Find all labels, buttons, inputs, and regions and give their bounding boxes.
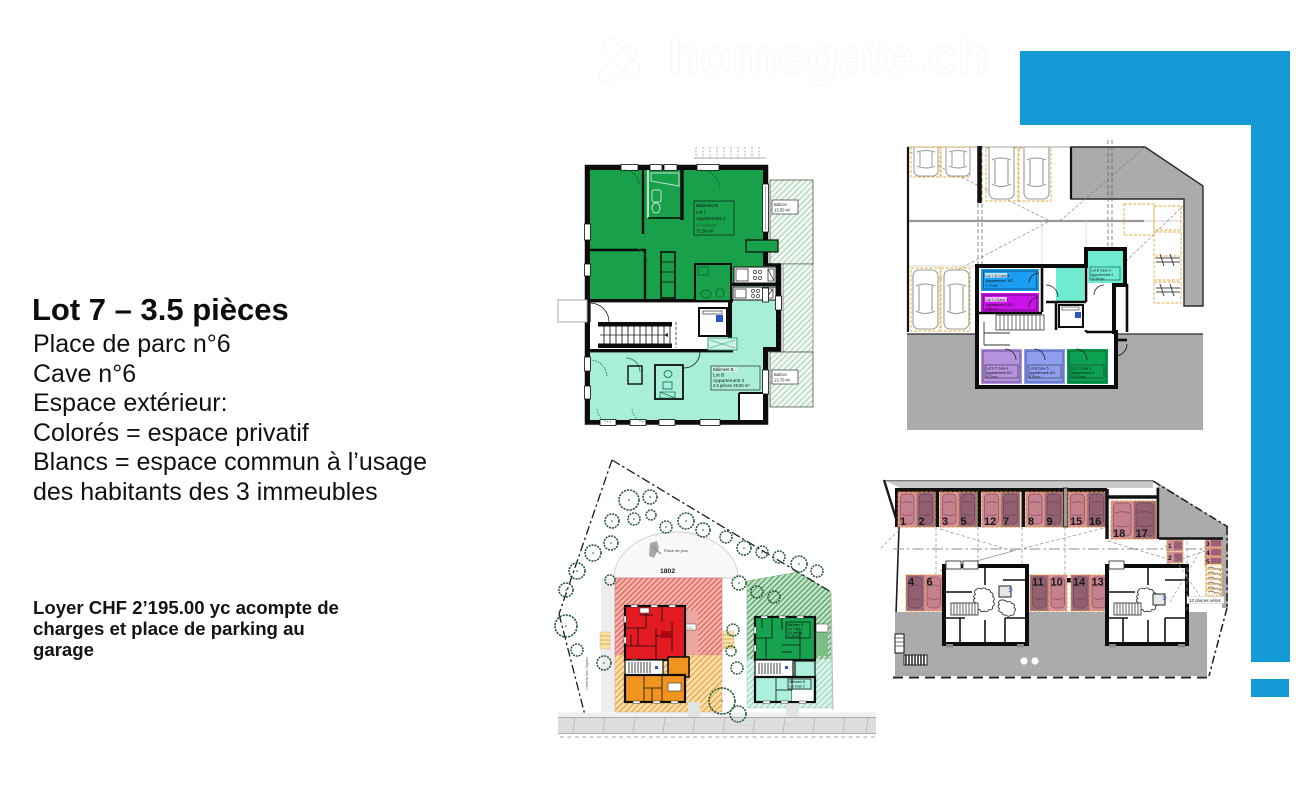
svg-text:15: 15 [1070,516,1082,528]
svg-text:Appartement 102: Appartement 102 [986,279,1014,283]
svg-text:Place de jeux: Place de jeux [664,548,688,553]
svg-text:71.50 m²: 71.50 m² [696,229,714,234]
svg-text:12: 12 [984,516,996,528]
svg-text:8: 8 [1028,516,1034,528]
svg-text:10.00 m²: 10.00 m² [1072,375,1086,379]
svg-text:Lot B: Lot B [713,373,724,379]
svg-text:Chemin des Vignes: Chemin des Vignes [585,657,589,690]
svg-text:9: 9 [1047,516,1053,528]
svg-text:14: 14 [1073,577,1086,589]
svg-text:11: 11 [1032,577,1044,589]
svg-text:3.5 pièces: 3.5 pièces [696,223,717,228]
svg-text:6: 6 [927,577,933,589]
svg-text:3: 3 [942,516,948,528]
svg-text:Bâtiment B: Bâtiment B [790,680,806,684]
svg-text:1: 1 [1168,543,1172,550]
svg-text:Lot 7-D Cave 1: Lot 7-D Cave 1 [986,274,1010,278]
svg-text:Bâtiment B: Bâtiment B [696,203,718,208]
svg-text:2: 2 [1168,555,1172,562]
svg-text:17: 17 [1136,528,1148,540]
svg-text:7: 7 [1003,516,1009,528]
svg-text:13.50 m²: 13.50 m² [774,208,791,213]
svg-text:Lot 8 Apt 2: Lot 8 Apt 2 [790,685,805,689]
svg-text:10.00 m²: 10.00 m² [1091,277,1105,281]
svg-text:7.50 m²: 7.50 m² [986,308,999,312]
svg-text:5: 5 [961,516,967,528]
svg-text:71.50 m²: 71.50 m² [788,635,801,639]
svg-text:8.50 m²: 8.50 m² [1029,375,1041,379]
svg-text:Balcon: Balcon [774,202,787,207]
svg-text:2.5 pièces 48.50 m²: 2.5 pièces 48.50 m² [713,383,750,388]
svg-text:Appartement 1: Appartement 1 [696,216,726,221]
svg-text:13.70 m²: 13.70 m² [774,378,791,383]
svg-text:4: 4 [1206,550,1210,557]
svg-text:3: 3 [1206,541,1210,548]
svg-text:L2.2: L2.2 [687,626,693,630]
svg-text:7.70 m²: 7.70 m² [986,284,999,288]
svg-text:8.70 m²: 8.70 m² [986,375,998,379]
svg-text:18: 18 [1113,528,1125,540]
svg-text:Lot 1-T Cave 4: Lot 1-T Cave 4 [986,367,1008,371]
svg-text:10: 10 [1051,577,1063,589]
svg-text:2: 2 [919,516,925,528]
svg-text:Lot B Cave 3: Lot B Cave 3 [1091,269,1111,273]
svg-text:Lot 7-I Cave 2: Lot 7-I Cave 2 [986,298,1009,302]
svg-text:Lot B Cave 5: Lot B Cave 5 [1029,367,1049,371]
svg-text:Balcon: Balcon [774,372,787,377]
svg-text:Lot 7 Cave 6: Lot 7 Cave 6 [1072,367,1091,371]
svg-text:13: 13 [1092,577,1104,589]
svg-text:12 places vélos: 12 places vélos [1189,598,1221,603]
svg-text:16: 16 [1089,516,1101,528]
svg-text:1: 1 [900,516,906,528]
svg-text:Appartement 202: Appartement 202 [986,303,1014,307]
svg-text:Lot 7: Lot 7 [696,210,707,215]
svg-text:1802: 1802 [660,568,675,575]
svg-text:Bâtiment B: Bâtiment B [713,367,734,372]
svg-text:4: 4 [908,577,915,589]
